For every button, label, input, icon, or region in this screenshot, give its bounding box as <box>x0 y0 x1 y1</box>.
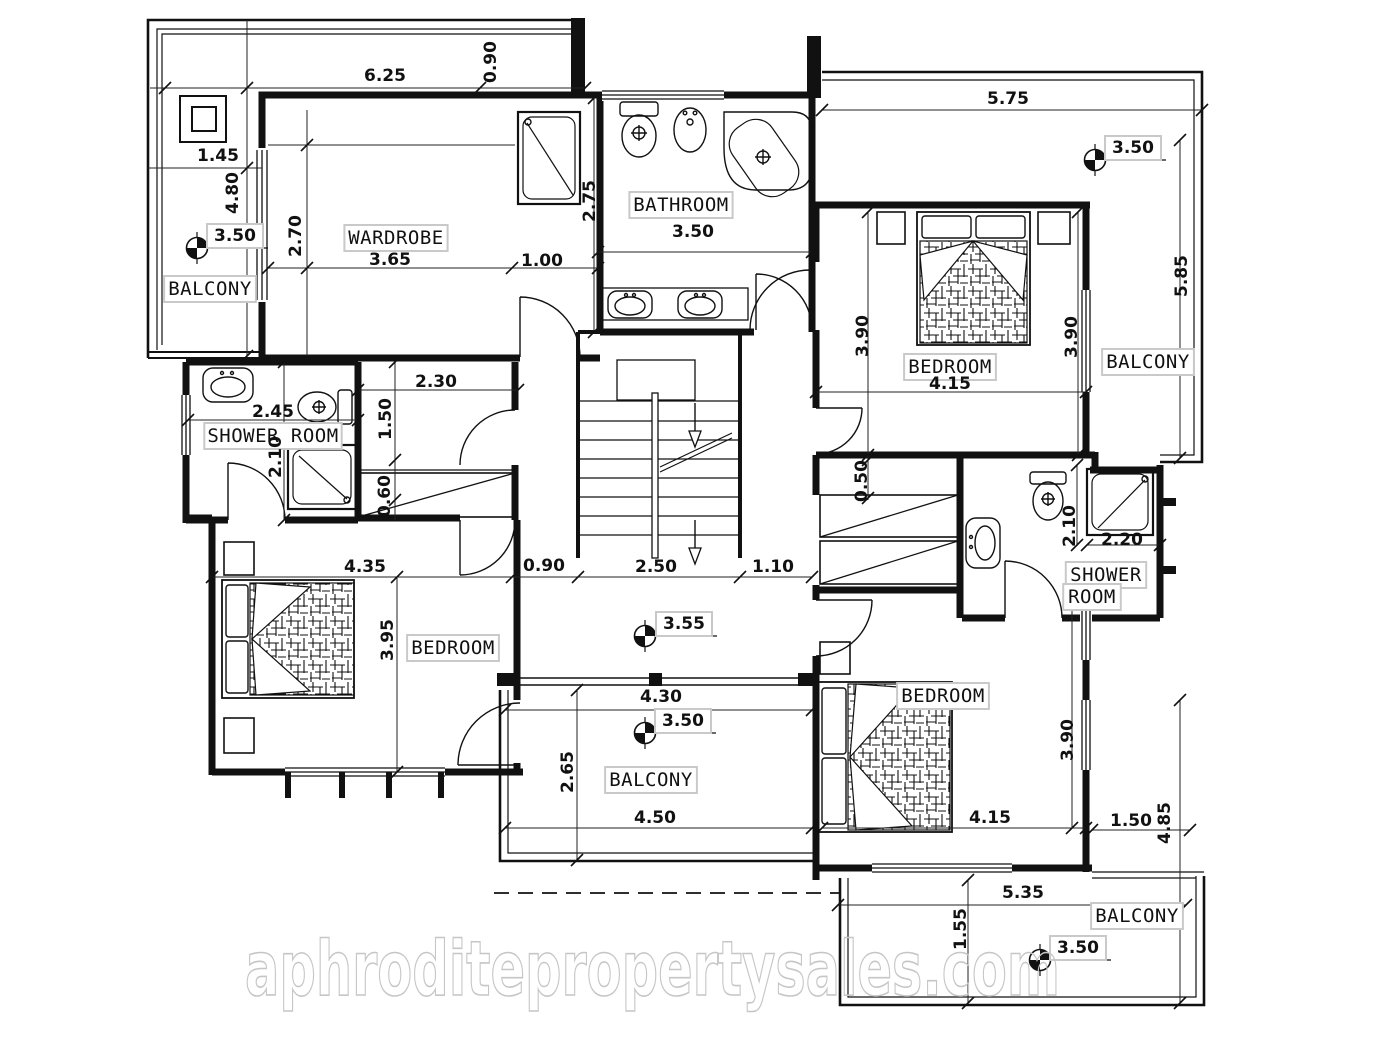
dimension-label: 5.35 <box>1002 883 1044 903</box>
room-label-text: BEDROOM <box>901 685 985 707</box>
bidet-icon <box>674 108 706 152</box>
dimension-label: 0.60 <box>375 475 395 517</box>
dimension-label: 2.65 <box>558 751 578 793</box>
room-label-text: ROOM <box>1068 586 1116 608</box>
dimension-label: 4.15 <box>969 808 1011 828</box>
staircase-icon <box>580 360 738 564</box>
elevation-value: 3.50 <box>1057 938 1099 958</box>
shower-tray-icon <box>518 112 580 204</box>
bed-icon <box>818 642 952 832</box>
vanity-counter <box>602 288 748 320</box>
floor-plan-drawing: BALCONYWARDROBEBATHROOMBEDROOMBALCONYSHO… <box>0 0 1390 1042</box>
dimension-label: 6.25 <box>364 66 406 86</box>
room-label: BALCONY <box>1102 349 1194 375</box>
room-label-text: BALCONY <box>1095 905 1179 927</box>
floor-plan-page: BALCONYWARDROBEBATHROOMBEDROOMBALCONYSHO… <box>0 0 1390 1042</box>
elevation-marker: 3.55 <box>635 612 718 652</box>
toilet-icon <box>620 102 658 157</box>
shower-tray-icon <box>288 445 356 509</box>
room-label-text: WARDROBE <box>348 227 444 249</box>
room-label: BALCONY <box>1091 903 1183 929</box>
elevation-value: 3.50 <box>662 711 704 731</box>
elevation-quadrant <box>187 248 198 259</box>
dimension-label: 1.45 <box>197 146 239 166</box>
room-label: BATHROOM <box>629 192 732 218</box>
elevation-marker: 3.50 <box>635 709 717 749</box>
dimension-label: 3.65 <box>369 250 411 270</box>
dimension-label: 3.90 <box>1058 719 1078 761</box>
room-label: BEDROOM <box>407 635 499 661</box>
room-label-text: BATHROOM <box>633 194 729 216</box>
elevation-value: 3.55 <box>663 614 705 634</box>
dimension-label: 1.00 <box>521 251 563 271</box>
dimension-label: 4.15 <box>929 374 971 394</box>
dimension-label: 4.85 <box>1155 802 1175 844</box>
sink-icon <box>608 291 652 318</box>
dimension-label: 4.30 <box>640 687 682 707</box>
closet-icon <box>820 495 958 584</box>
room-label-text: BEDROOM <box>411 637 495 659</box>
dimension-label: 2.10 <box>1060 505 1080 547</box>
elevation-quadrant <box>1095 150 1106 161</box>
dimension-label: 5.85 <box>1172 255 1192 297</box>
watermark-layer: aphroditepropertysales.com <box>245 924 1060 1013</box>
room-label: BALCONY <box>605 767 697 793</box>
elevation-quadrant <box>645 723 656 734</box>
toilet-icon <box>298 390 352 424</box>
dimension-label: 4.50 <box>634 808 676 828</box>
dimension-label: 4.80 <box>223 172 243 214</box>
dimension-label: 0.90 <box>481 41 501 83</box>
sink-icon <box>966 518 1000 568</box>
dimension-label: 5.75 <box>987 89 1029 109</box>
room-label: ROOM <box>1063 584 1121 610</box>
sink-icon <box>203 368 253 402</box>
sink-icon <box>678 291 722 318</box>
elevation-quadrant <box>645 626 656 637</box>
room-label-text: SHOWER <box>1070 564 1142 586</box>
elevation-quadrant <box>635 636 646 647</box>
bed-icon <box>877 212 1070 345</box>
dimension-label: 3.50 <box>672 222 714 242</box>
room-label-text: BALCONY <box>609 769 693 791</box>
dimension-label: 2.20 <box>1101 530 1143 550</box>
elevation-quadrant <box>1085 160 1096 171</box>
dimension-label: 3.90 <box>1062 316 1082 358</box>
watermark: aphroditepropertysales.com <box>245 924 1060 1013</box>
bathtub-icon <box>721 111 812 204</box>
elevation-quadrant <box>197 238 208 249</box>
shower-tray-icon <box>1087 469 1153 535</box>
dimension-label: 2.10 <box>266 436 286 478</box>
elevation-value: 3.50 <box>214 226 256 246</box>
dimension-label: 1.50 <box>1110 811 1152 831</box>
dimension-label: 1.10 <box>752 557 794 577</box>
room-label: WARDROBE <box>344 225 447 251</box>
dimension-label: 3.95 <box>378 619 398 661</box>
elevation-value: 3.50 <box>1112 138 1154 158</box>
dimension-label: 4.35 <box>344 557 386 577</box>
dimension-label: 1.50 <box>376 398 396 440</box>
room-label-text: BALCONY <box>1106 351 1190 373</box>
bed-icon <box>222 542 354 753</box>
dimension-label: 0.90 <box>523 556 565 576</box>
room-label-text: BALCONY <box>168 278 252 300</box>
elevation-marker: 3.50 <box>1085 136 1167 176</box>
elevation-quadrant <box>635 733 646 744</box>
column-icon <box>180 96 226 142</box>
dimension-label: 2.75 <box>580 180 600 222</box>
dimension-label: 2.70 <box>286 215 306 257</box>
dimension-label: 2.30 <box>415 372 457 392</box>
dimension-label: 2.50 <box>635 557 677 577</box>
dimension-label: 2.45 <box>252 402 294 422</box>
balcony-outlines <box>148 20 1204 1005</box>
dimension-label: 3.90 <box>853 315 873 357</box>
room-label: BEDROOM <box>897 683 989 709</box>
dimension-label: 0.50 <box>852 460 872 502</box>
room-label: BALCONY <box>164 276 256 302</box>
